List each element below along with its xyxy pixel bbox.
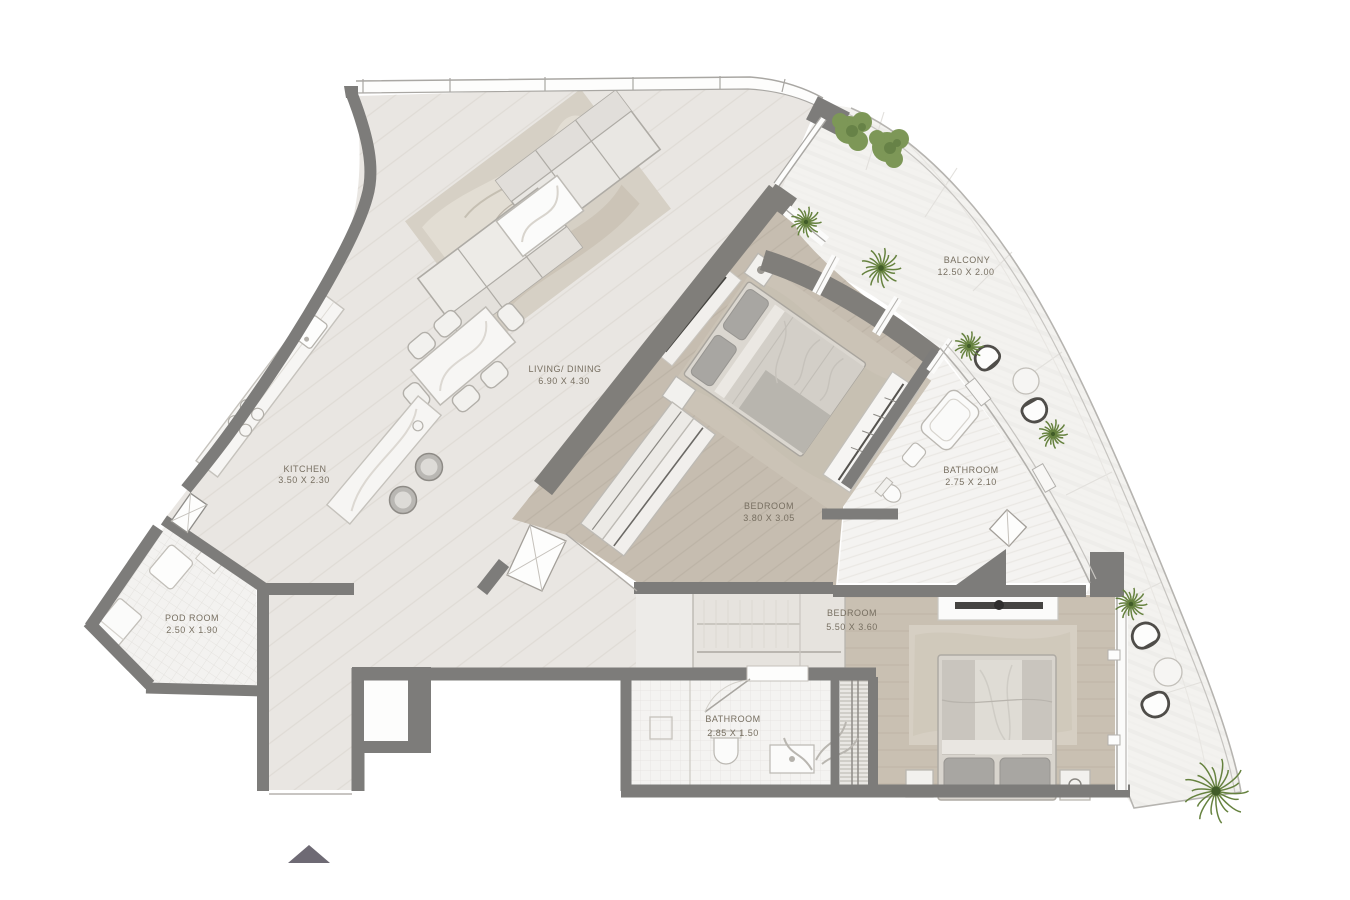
svg-text:2.85 X 1.50: 2.85 X 1.50 bbox=[707, 728, 759, 738]
svg-text:6.90 X 4.30: 6.90 X 4.30 bbox=[538, 376, 590, 386]
svg-text:BATHROOM: BATHROOM bbox=[943, 465, 998, 475]
svg-text:LIVING/ DINING: LIVING/ DINING bbox=[528, 364, 601, 374]
svg-text:BALCONY: BALCONY bbox=[944, 255, 991, 265]
svg-text:3.50 X 2.30: 3.50 X 2.30 bbox=[278, 475, 330, 485]
svg-text:BEDROOM: BEDROOM bbox=[827, 608, 877, 618]
svg-text:5.50 X 3.60: 5.50 X 3.60 bbox=[826, 622, 878, 632]
svg-text:2.75 X 2.10: 2.75 X 2.10 bbox=[945, 477, 997, 487]
svg-text:BATHROOM: BATHROOM bbox=[705, 714, 760, 724]
svg-text:KITCHEN: KITCHEN bbox=[283, 464, 326, 474]
svg-text:BEDROOM: BEDROOM bbox=[744, 501, 794, 511]
svg-text:12.50 X 2.00: 12.50 X 2.00 bbox=[937, 267, 994, 277]
svg-text:POD ROOM: POD ROOM bbox=[165, 613, 219, 623]
svg-text:3.80 X 3.05: 3.80 X 3.05 bbox=[743, 513, 795, 523]
svg-text:2.50 X 1.90: 2.50 X 1.90 bbox=[166, 625, 218, 635]
